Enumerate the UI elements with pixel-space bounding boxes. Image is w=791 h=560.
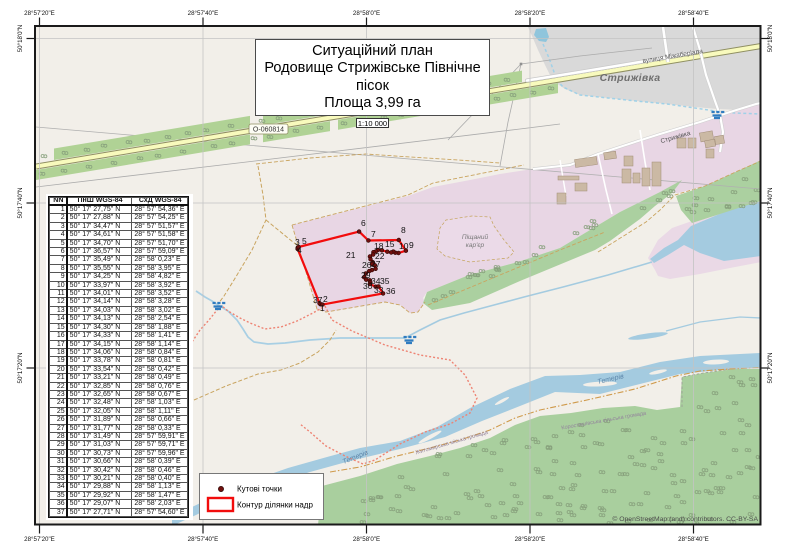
svg-text:28°57'20"E: 28°57'20"E	[24, 10, 55, 17]
svg-text:28°57'20"E: 28°57'20"E	[24, 536, 55, 543]
svg-text:33: 33	[374, 285, 384, 295]
svg-text:21: 21	[346, 250, 356, 260]
svg-text:50°17'40"N: 50°17'40"N	[767, 188, 774, 219]
svg-text:6: 6	[361, 218, 366, 228]
svg-text:28°58'20"E: 28°58'20"E	[515, 10, 546, 17]
svg-text:18: 18	[374, 241, 384, 251]
svg-text:5: 5	[302, 236, 307, 246]
svg-text:9: 9	[409, 240, 414, 250]
svg-text:7: 7	[371, 229, 376, 239]
svg-text:50°17'20"N: 50°17'20"N	[767, 353, 774, 384]
svg-text:4: 4	[297, 245, 302, 255]
svg-text:50°17'40"N: 50°17'40"N	[17, 188, 24, 219]
svg-text:28°58'40"E: 28°58'40"E	[678, 10, 709, 17]
svg-text:Піщаний: Піщаний	[462, 233, 489, 241]
svg-text:10: 10	[399, 241, 409, 251]
svg-text:28°57'40"E: 28°57'40"E	[188, 536, 219, 543]
svg-text:28°58'0"E: 28°58'0"E	[353, 10, 380, 17]
svg-text:15: 15	[385, 239, 395, 249]
svg-text:27: 27	[371, 259, 381, 269]
svg-text:28°58'0"E: 28°58'0"E	[353, 536, 380, 543]
svg-text:8: 8	[401, 225, 406, 235]
svg-text:Кутові точки: Кутові точки	[237, 485, 282, 494]
svg-text:1: 1	[320, 303, 325, 313]
svg-text:© OpenStreetMap (and) contribu: © OpenStreetMap (and) contributors. CC-B…	[612, 515, 758, 523]
svg-text:50°18'0"N: 50°18'0"N	[17, 25, 24, 53]
svg-text:36: 36	[386, 286, 396, 296]
svg-text:Стрижівка: Стрижівка	[600, 72, 661, 84]
svg-text:28°58'20"E: 28°58'20"E	[515, 536, 546, 543]
svg-text:28°58'40"E: 28°58'40"E	[678, 536, 709, 543]
svg-text:50°17'20"N: 50°17'20"N	[17, 353, 24, 384]
svg-text:28°57'40"E: 28°57'40"E	[188, 10, 219, 17]
svg-text:29: 29	[361, 270, 371, 280]
svg-text:50°18'0"N: 50°18'0"N	[767, 25, 774, 53]
svg-text:кар'єр: кар'єр	[466, 242, 485, 249]
svg-text:О-060814: О-060814	[253, 127, 284, 134]
svg-text:Контур ділянки надр: Контур ділянки надр	[237, 501, 313, 510]
